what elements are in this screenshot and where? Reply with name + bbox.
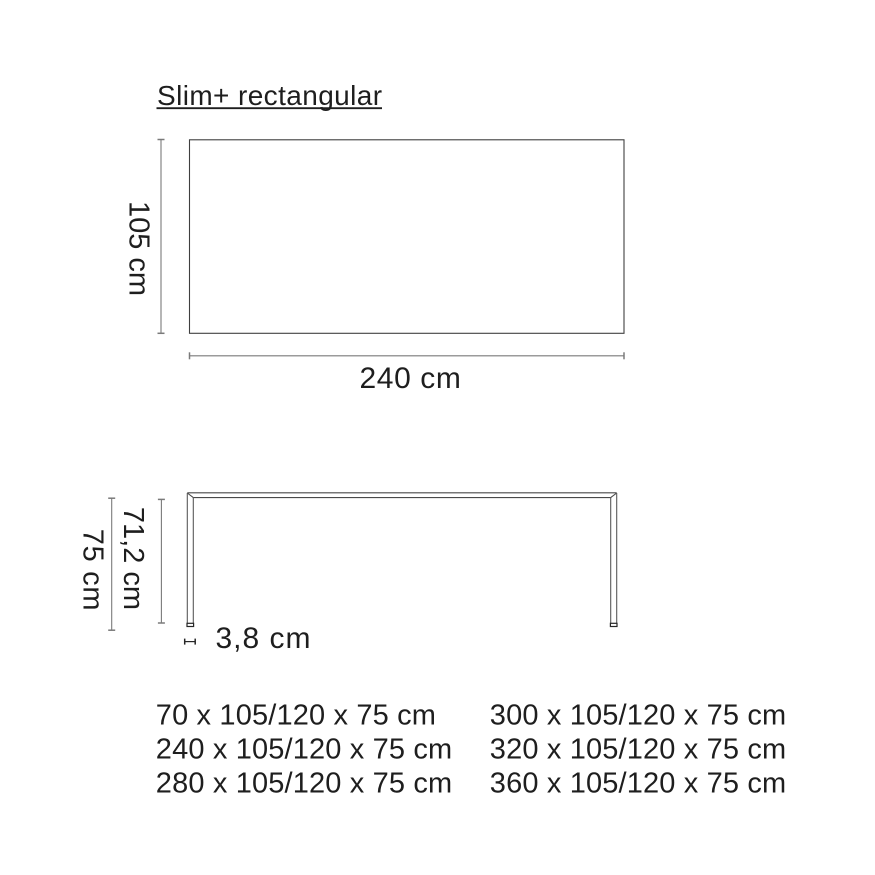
- svg-text:240 x 105/120 x 75 cm: 240 x 105/120 x 75 cm: [156, 734, 453, 766]
- svg-text:320 x 105/120 x 75 cm: 320 x 105/120 x 75 cm: [490, 734, 787, 766]
- svg-text:360 x 105/120 x 75 cm: 360 x 105/120 x 75 cm: [490, 768, 787, 800]
- svg-text:Slim+ rectangular: Slim+ rectangular: [157, 80, 382, 111]
- svg-text:70 x 105/120 x 75 cm: 70 x 105/120 x 75 cm: [156, 700, 436, 732]
- svg-text:300 x 105/120 x 75 cm: 300 x 105/120 x 75 cm: [490, 700, 787, 732]
- svg-text:3,8 cm: 3,8 cm: [216, 622, 312, 655]
- svg-text:75 cm: 75 cm: [77, 529, 109, 611]
- svg-text:280 x 105/120 x 75 cm: 280 x 105/120 x 75 cm: [156, 768, 453, 800]
- svg-text:105 cm: 105 cm: [123, 201, 155, 296]
- svg-text:71,2 cm: 71,2 cm: [117, 507, 149, 610]
- svg-text:240 cm: 240 cm: [360, 362, 462, 395]
